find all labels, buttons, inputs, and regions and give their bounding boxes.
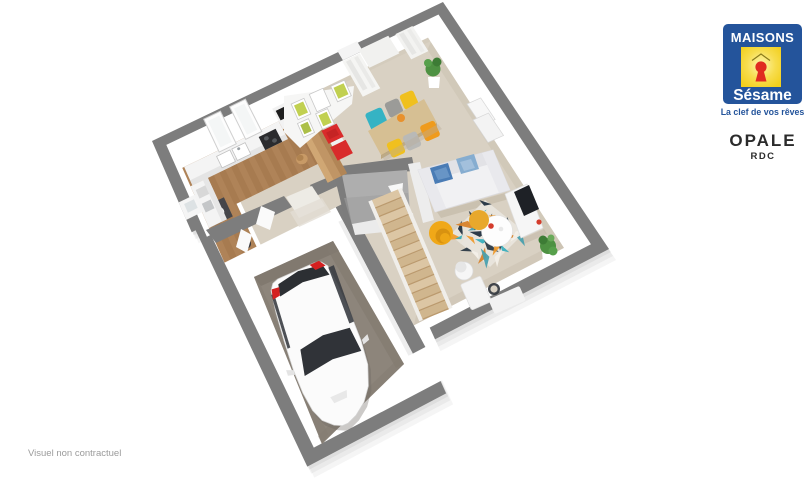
svg-text:Visuel non contractuel: Visuel non contractuel	[28, 448, 121, 459]
svg-text:MAISONS: MAISONS	[731, 30, 794, 45]
svg-text:OPALE: OPALE	[729, 131, 796, 150]
svg-text:RDC: RDC	[750, 151, 775, 162]
svg-text:La clef de vos rêves: La clef de vos rêves	[721, 107, 805, 117]
svg-text:Sésame: Sésame	[733, 87, 792, 104]
